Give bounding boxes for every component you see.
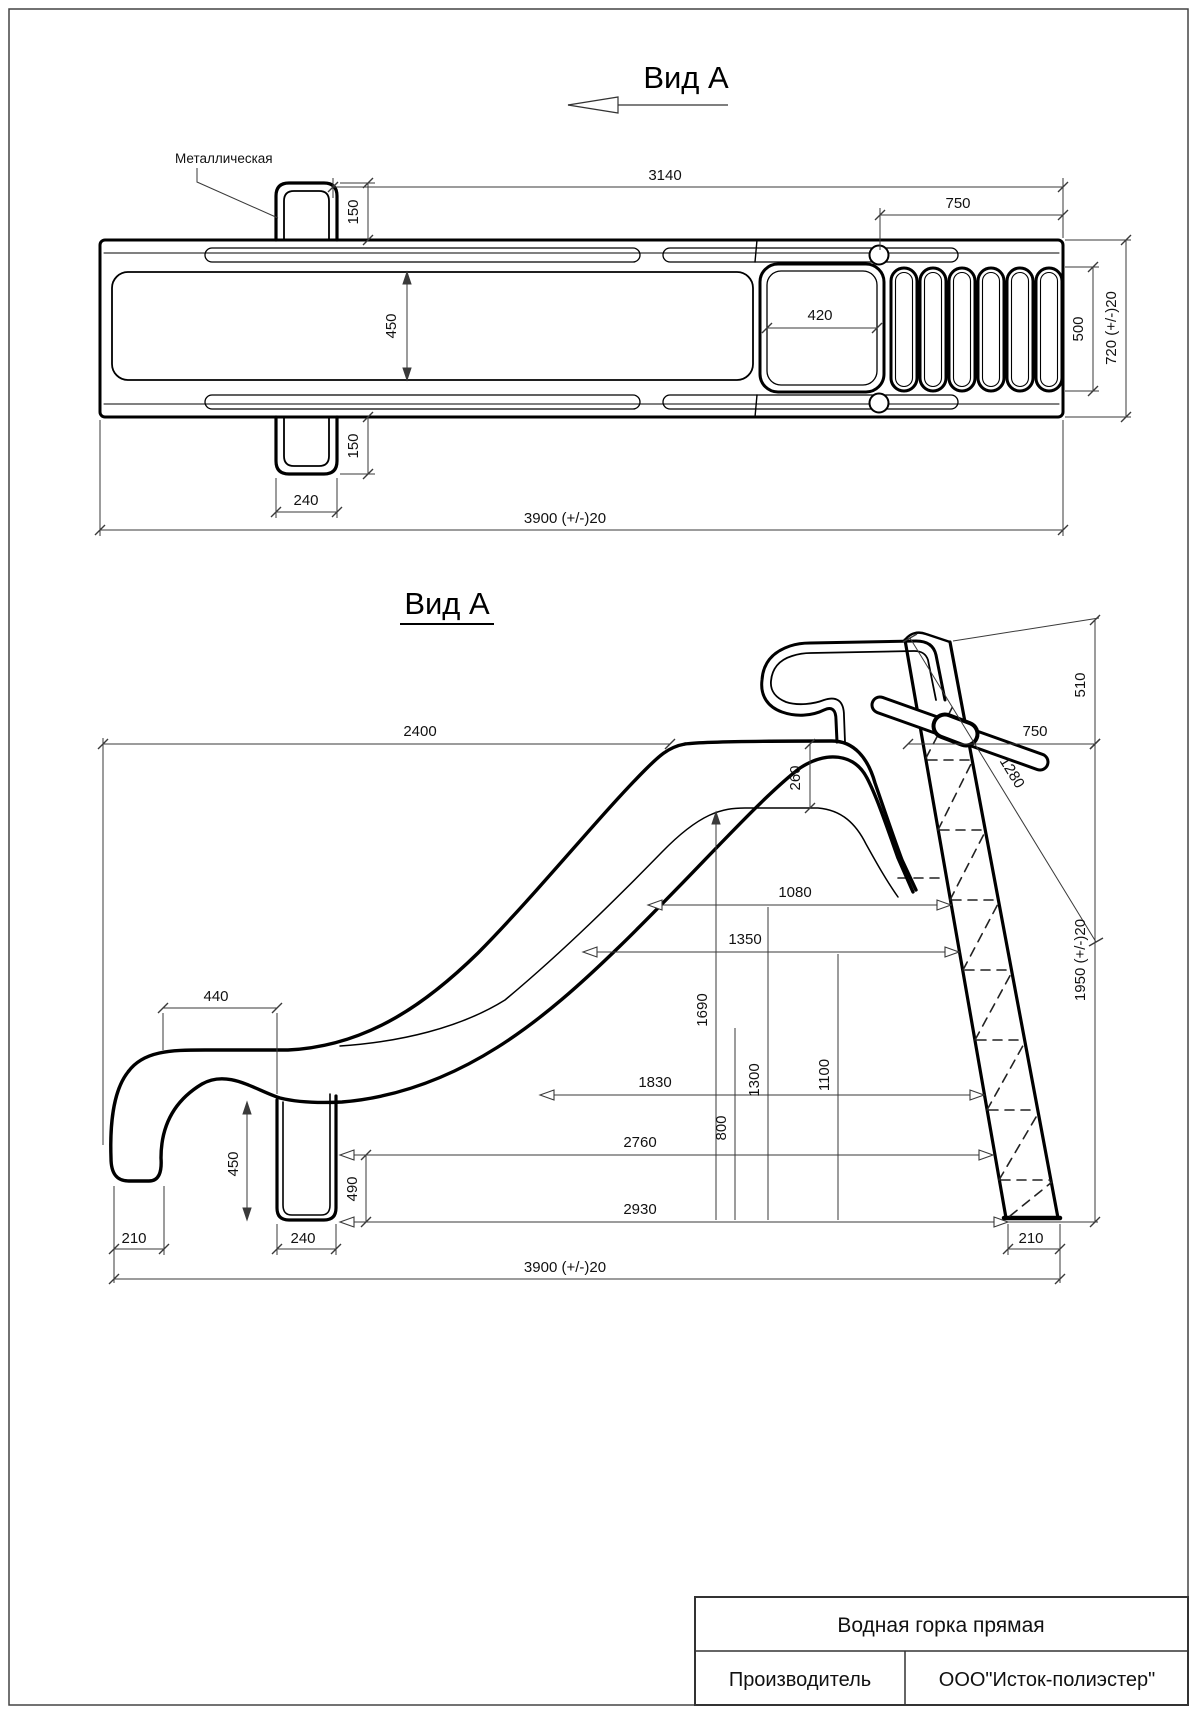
dim-510: 510 <box>1072 672 1089 697</box>
dim-260: 260 <box>787 765 804 790</box>
bolt-top <box>870 246 889 265</box>
dim-210-left: 210 <box>121 1230 146 1247</box>
dim-750-top: 750 <box>945 195 970 212</box>
dim-1690: 1690 <box>694 993 711 1026</box>
chute-channel <box>112 272 753 380</box>
dim-440: 440 <box>203 988 228 1005</box>
dim-240-top-view: 240 <box>293 492 318 509</box>
dim-3900-top-view: 3900 (+/-)20 <box>524 510 606 527</box>
product-name: Водная горка прямая <box>837 1614 1044 1637</box>
metal-handle-bottom-inner <box>284 417 329 466</box>
top-view-title: Вид А <box>568 60 729 113</box>
side-view-title-text: Вид А <box>404 586 490 621</box>
dim-240-side: 240 <box>290 1230 315 1247</box>
title-block: Водная горка прямая Производитель ООО"Ис… <box>695 1597 1188 1705</box>
dim-210-right: 210 <box>1018 1230 1043 1247</box>
dim-150-bottom: 150 <box>345 433 362 458</box>
dim-720: 720 (+/-)20 <box>1103 291 1120 365</box>
dim-1300: 1300 <box>746 1063 763 1096</box>
dim-2930: 2930 <box>623 1201 656 1218</box>
dim-150-top: 150 <box>345 199 362 224</box>
dim-800: 800 <box>713 1115 730 1140</box>
dim-1950: 1950 (+/-)20 <box>1072 919 1089 1001</box>
side-view-dim-labels: 2400 750 510 1280 260 1080 1350 1950 (+/… <box>121 672 1089 1276</box>
material-label: Металлическая <box>175 151 273 166</box>
material-callout: Металлическая <box>175 151 278 218</box>
dim-450-side: 450 <box>225 1151 242 1176</box>
dim-490: 490 <box>344 1176 361 1201</box>
dim-1080: 1080 <box>778 884 811 901</box>
material-leader-line <box>197 168 278 218</box>
ladder-handrail-tube <box>880 705 1040 762</box>
dim-420: 420 <box>807 307 832 324</box>
handrail-loop-inner <box>771 651 936 742</box>
ladder-rungs-plan <box>891 268 1062 391</box>
slide-profile-outline <box>111 744 913 1181</box>
top-view <box>100 183 1063 474</box>
metal-handle-top-inner <box>284 191 329 240</box>
top-view-title-text: Вид А <box>643 60 729 95</box>
page-frame <box>9 9 1188 1705</box>
support-leg-inner <box>283 1094 330 1215</box>
dim-1100: 1100 <box>816 1059 833 1091</box>
bolt-bottom <box>870 394 889 413</box>
body-seams <box>755 240 757 417</box>
top-view-dim-labels: 3140 750 150 450 420 500 720 (+/-)20 150… <box>293 167 1120 527</box>
dim-500: 500 <box>1070 316 1087 341</box>
view-direction-arrowhead <box>568 97 618 113</box>
dim-2400: 2400 <box>403 723 436 740</box>
dim-2760: 2760 <box>623 1134 656 1151</box>
drawing-sheet: Вид А <box>0 0 1200 1712</box>
side-view <box>111 633 1060 1220</box>
manufacturer-label: Производитель <box>729 1669 871 1691</box>
drawing-canvas: Вид А <box>0 0 1200 1712</box>
dim-750-side: 750 <box>1022 723 1047 740</box>
chute-inner-edge <box>340 808 898 1046</box>
dim-3900-side: 3900 (+/-)20 <box>524 1259 606 1276</box>
dim-1830: 1830 <box>638 1074 671 1091</box>
support-leg-outer <box>277 1096 336 1220</box>
side-view-title: Вид А <box>400 586 494 624</box>
dim-1350: 1350 <box>728 931 761 948</box>
dim-3140: 3140 <box>648 167 681 184</box>
manufacturer-value: ООО"Исток-полиэстер" <box>939 1669 1155 1691</box>
dim-450-top-view: 450 <box>383 313 400 338</box>
